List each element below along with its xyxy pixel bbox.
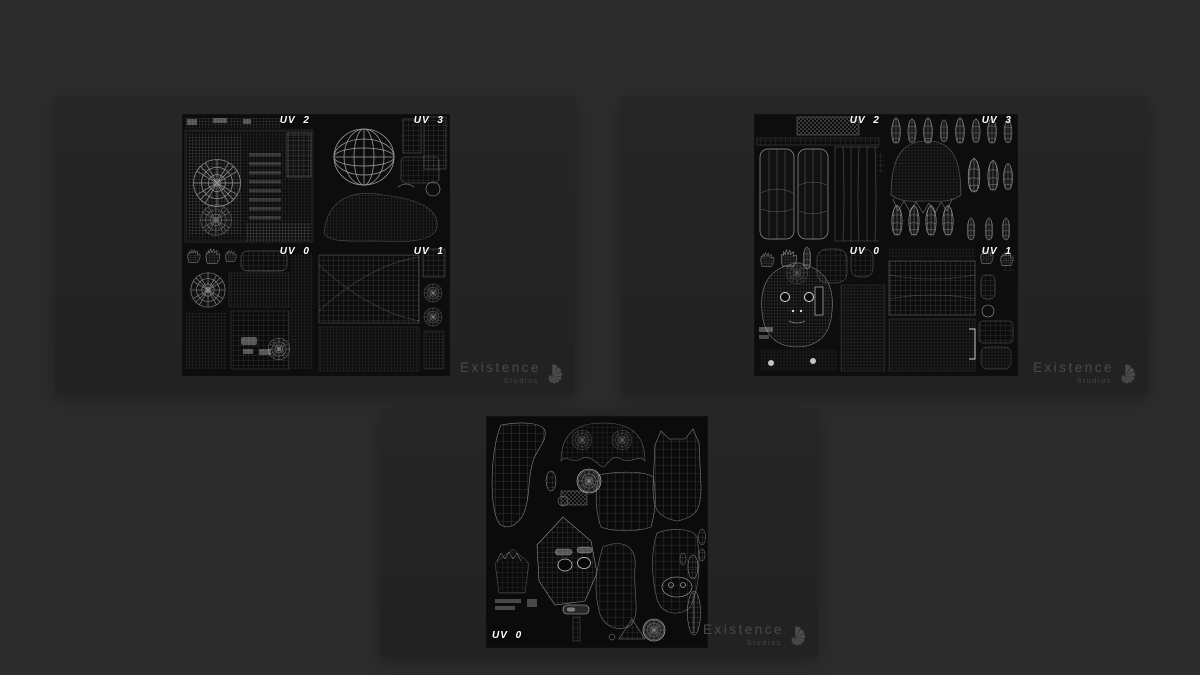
watermark: Existence Studios: [460, 359, 567, 386]
uv-label: UV 3: [414, 115, 444, 126]
page-background: { "watermark": { "title": "Existence", "…: [0, 0, 1200, 675]
uv-label: UV 1: [414, 246, 444, 257]
uv-sheet-bottom: UV 0: [487, 417, 707, 647]
uv-sheet-right: UV 2 UV 3 UV 0 UV 1: [755, 115, 1017, 375]
uv-label: UV 0: [850, 246, 880, 257]
uv-wireframe-art: [755, 115, 1017, 375]
watermark: Existence Studios: [1033, 359, 1140, 386]
existence-fan-logo-icon: [543, 359, 567, 386]
watermark-title: Existence: [703, 623, 784, 637]
uv-board-left: UV 2 UV 3 UV 0 UV 1 Existence Studios: [55, 97, 575, 393]
watermark-subtitle: Studios: [460, 376, 539, 385]
watermark-title: Existence: [1033, 361, 1114, 375]
existence-fan-logo-icon: [786, 621, 810, 648]
watermark-subtitle: Studios: [1033, 376, 1112, 385]
uv-wireframe-art: [183, 115, 449, 375]
uv-board-bottom: UV 0 Existence Studios: [380, 410, 818, 655]
watermark: Existence Studios: [703, 621, 810, 648]
uv-label: UV 3: [982, 115, 1012, 126]
uv-label: UV 1: [982, 246, 1012, 257]
uv-sheet-left: UV 2 UV 3 UV 0 UV 1: [183, 115, 449, 375]
uv-label: UV 2: [850, 115, 880, 126]
uv-label: UV 0: [492, 630, 522, 641]
existence-fan-logo-icon: [1116, 359, 1140, 386]
uv-label: UV 2: [280, 115, 310, 126]
watermark-subtitle: Studios: [703, 638, 782, 647]
watermark-title: Existence: [460, 361, 541, 375]
uv-board-right: UV 2 UV 3 UV 0 UV 1 Existence Studios: [621, 97, 1148, 393]
uv-wireframe-art: [487, 417, 707, 647]
uv-label: UV 0: [280, 246, 310, 257]
